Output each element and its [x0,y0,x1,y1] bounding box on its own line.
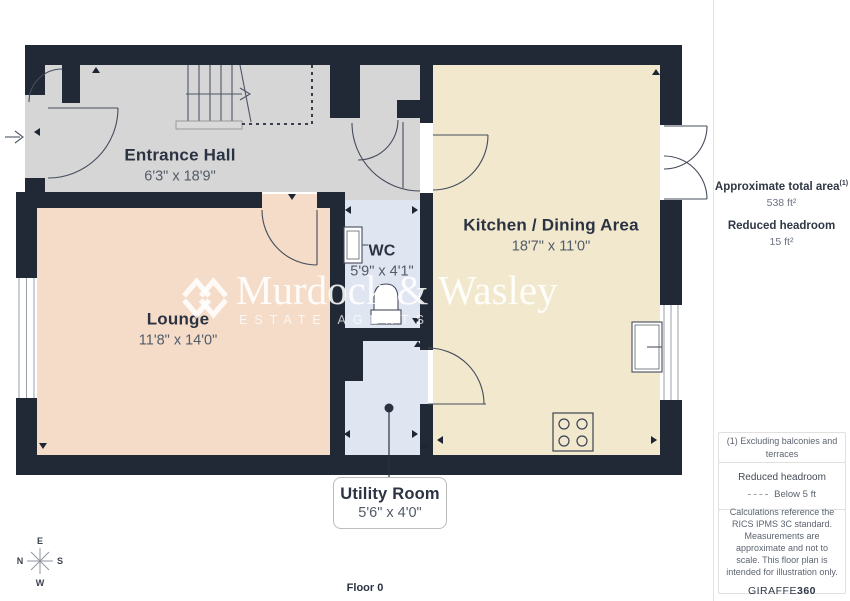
room-label-lounge: Lounge 11'8" x 14'0" [139,310,217,349]
room-name: Entrance Hall [124,146,235,166]
reduced-headroom-value: 15 ft² [713,236,850,248]
sidebar-divider [713,0,714,601]
room-dimensions: 6'3" x 18'9" [124,169,235,185]
brand-logo: GIRAFFE360 [719,585,845,597]
legend-title: Reduced headroom [719,472,845,483]
footnote-text: (1) Excluding balconies and terraces [719,435,845,459]
legend-item-text: Below 5 ft [774,489,816,500]
disclaimer-text: Calculations reference the RICS IPMS 3C … [719,506,845,579]
sidebar-footnote-box: (1) Excluding balconies and terraces [718,432,846,463]
compass-left-label: N [17,556,24,566]
brand-name: GIRAFFE [748,585,797,597]
room-name: WC [350,243,413,261]
wc-toilet-icon [371,284,401,324]
room-label-wc: WC 5'9" x 4'1" [350,243,413,280]
compass-icon: E W N S [17,536,63,588]
dashed-line-icon [748,494,768,495]
room-dimensions: 5'9" x 4'1" [350,264,413,280]
room-label-kitchen-dining: Kitchen / Dining Area 18'7" x 11'0" [463,216,638,255]
floorplan-page: E W N S Entrance Hall 6'3" x 18'9" Loung… [0,0,850,601]
reduced-headroom-label: Reduced headroom [713,220,850,232]
compass-top-label: E [37,536,43,546]
sidebar-area-summary: Approximate total area(1) 538 ft² Reduce… [713,180,850,259]
room-name: Kitchen / Dining Area [463,216,638,236]
compass-bottom-label: W [36,578,45,588]
sidebar-legend-box: Reduced headroom Below 5 ft [718,462,846,510]
compass-right-label: S [57,556,63,566]
room-dimensions: 18'7" x 11'0" [463,239,638,255]
sidebar-disclaimer-box: Calculations reference the RICS IPMS 3C … [718,509,846,594]
total-area-label-text: Approximate total area [715,181,840,193]
window-left [16,278,37,398]
window-right [660,305,682,400]
entrance-arrow-icon [5,131,23,143]
room-dimensions: 11'8" x 14'0" [139,333,217,349]
floor-label: Floor 0 [347,582,384,594]
room-dimensions: 5'6" x 4'0" [334,505,446,521]
total-area-value: 538 ft² [713,197,850,209]
room-name: Utility Room [334,485,446,504]
kitchen-cabinet-icon [632,322,662,372]
room-name: Lounge [139,310,217,330]
footnote-marker: (1) [840,180,849,187]
total-area-label: Approximate total area(1) [713,180,850,193]
kitchen-hob-icon [553,413,593,451]
legend-row: Below 5 ft [719,489,845,500]
room-label-entrance-hall: Entrance Hall 6'3" x 18'9" [124,146,235,185]
brand-suffix: 360 [797,585,816,597]
room-label-utility-room: Utility Room 5'6" x 4'0" [333,477,447,529]
